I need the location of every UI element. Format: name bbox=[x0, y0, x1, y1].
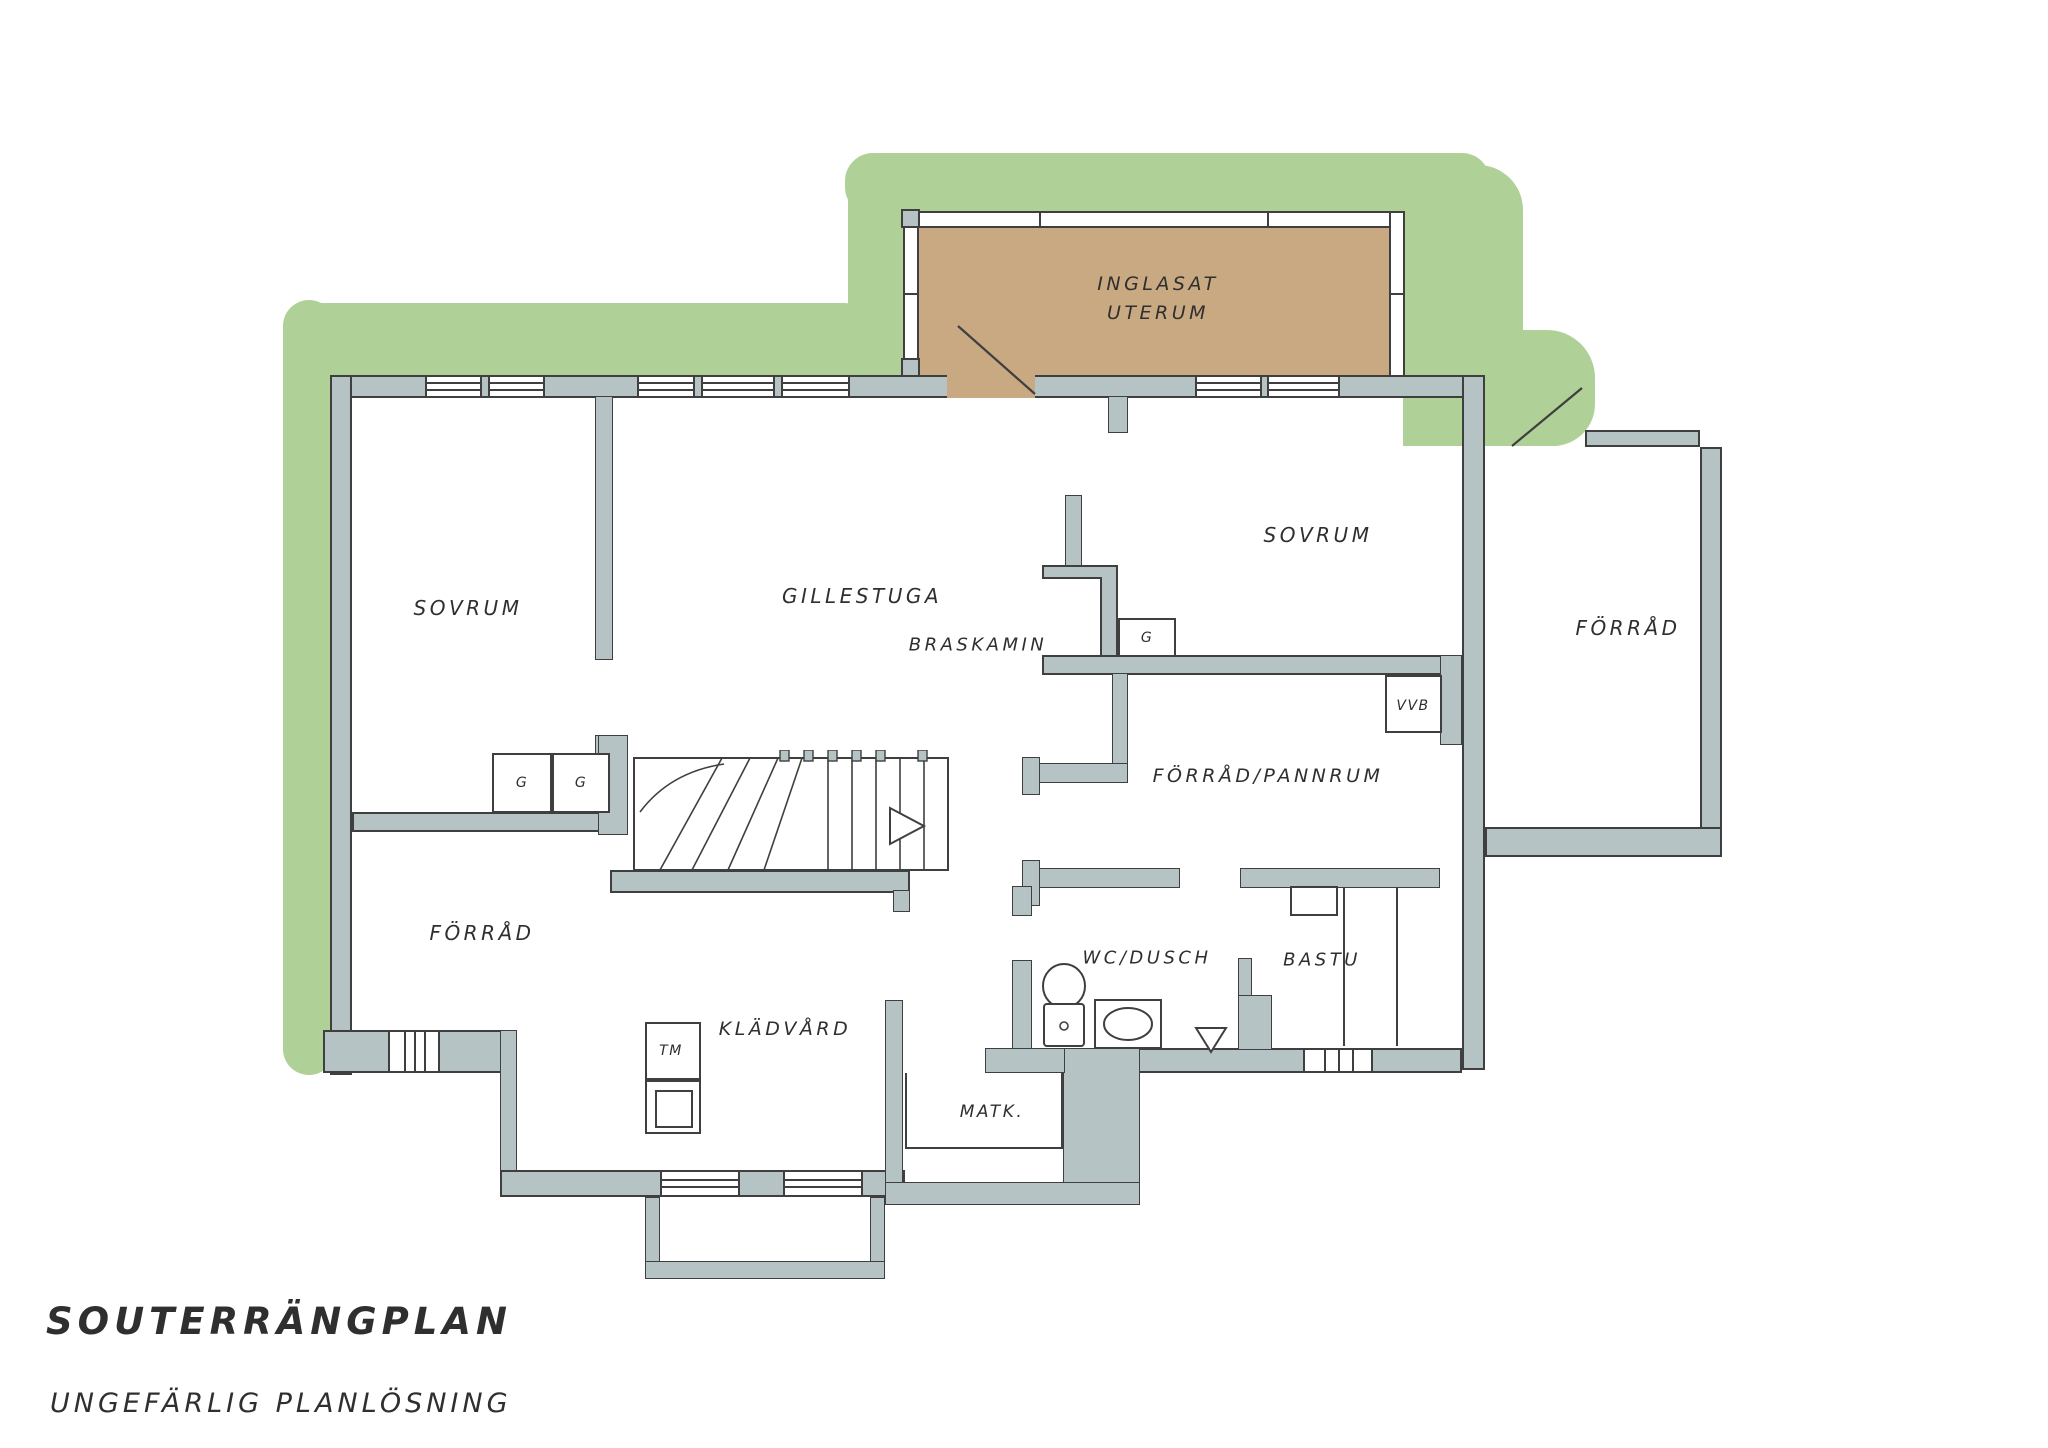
window bbox=[488, 375, 545, 398]
landscape-green-left-of-uterum bbox=[848, 162, 905, 378]
washbasin-icon bbox=[1093, 998, 1163, 1050]
wall-west bbox=[330, 375, 352, 1075]
window bbox=[425, 375, 482, 398]
sauna-bench-line bbox=[1396, 888, 1398, 1046]
wall-hall-pannrum-vert bbox=[1112, 673, 1128, 767]
forrad-right-wall-south bbox=[1485, 827, 1722, 857]
window bbox=[701, 375, 775, 398]
wall-matk-north bbox=[985, 1048, 1065, 1073]
room-label-forrad-left: FÖRRÅD bbox=[429, 921, 534, 945]
fireplace-opening bbox=[1042, 577, 1102, 663]
wall-sovrum-left-south bbox=[352, 812, 615, 832]
window bbox=[1267, 375, 1340, 398]
window bbox=[781, 375, 850, 398]
room-label-sovrum-right: SOVRUM bbox=[1264, 523, 1373, 547]
room-label-braskamin: BRASKAMIN bbox=[909, 635, 1048, 656]
window bbox=[660, 1170, 740, 1197]
window bbox=[388, 1030, 440, 1073]
appliance-inner bbox=[655, 1090, 693, 1128]
window bbox=[783, 1170, 863, 1197]
floor-plan: INGLASAT UTERUM SOVRUM GILLESTUGA BRASKA… bbox=[0, 0, 2048, 1448]
wall-stub-stairs bbox=[893, 890, 910, 912]
room-label-tm: TM bbox=[659, 1043, 683, 1059]
room-label-vvb: VVB bbox=[1396, 698, 1429, 714]
landscape-green-topleft bbox=[288, 303, 863, 379]
wardrobe-label-g3: G bbox=[1141, 630, 1153, 646]
room-label-wc-dusch: WC/DUSCH bbox=[1083, 948, 1212, 969]
uterum-corner-post-nw bbox=[901, 209, 920, 228]
wall-step-kladvard bbox=[500, 1030, 517, 1180]
wall-wc-west-lower bbox=[1012, 960, 1032, 1050]
window bbox=[1303, 1048, 1373, 1073]
room-label-forrad-pannrum: FÖRRÅD/PANNRUM bbox=[1153, 765, 1384, 787]
room-label-forrad-right: FÖRRÅD bbox=[1575, 616, 1680, 640]
forrad-right-wall-north bbox=[1585, 430, 1700, 447]
room-label-kladvard: KLÄDVÅRD bbox=[719, 1018, 852, 1040]
room-label-uterum-line1: INGLASAT bbox=[1097, 273, 1218, 295]
wall-east-inner bbox=[1462, 375, 1485, 1070]
room-label-gillestuga: GILLESTUGA bbox=[782, 584, 942, 608]
wall-wc-west-upper bbox=[1012, 886, 1032, 916]
landscape-green-above-uterum bbox=[845, 153, 1490, 215]
wall-kladvard-east bbox=[885, 1000, 903, 1197]
wall-sovrum-gillestuga-upper bbox=[595, 396, 613, 660]
wall-corridor-east bbox=[1240, 868, 1440, 888]
toilet-icon bbox=[1036, 962, 1092, 1052]
plan-title: SOUTERRÄNGPLAN bbox=[46, 1300, 512, 1343]
uterum-glazing-right bbox=[1389, 211, 1405, 377]
forrad-right-wall-east bbox=[1700, 447, 1722, 857]
plan-subtitle: UNGEFÄRLIG PLANLÖSNING bbox=[50, 1388, 512, 1419]
landscape-green-left bbox=[283, 300, 335, 1075]
wall-matk-south bbox=[885, 1182, 1140, 1205]
room-label-matk: MATK. bbox=[960, 1102, 1025, 1122]
wall-above-fireplace bbox=[1065, 495, 1082, 569]
wall-pannrum-east bbox=[1440, 655, 1462, 745]
uterum-glazing-top bbox=[903, 211, 1405, 228]
wall-wc-bastu-2 bbox=[1238, 995, 1272, 1050]
window bbox=[637, 375, 695, 398]
bay-wall-south bbox=[645, 1261, 885, 1279]
wall-corridor-west bbox=[1028, 868, 1180, 888]
wardrobe-label-g2: G bbox=[575, 775, 587, 791]
wall-stub-north bbox=[1108, 396, 1128, 433]
wall-sovrum-right-south bbox=[1042, 655, 1462, 675]
room-label-uterum-line2: UTERUM bbox=[1107, 302, 1209, 324]
wardrobe-label-g1: G bbox=[516, 775, 528, 791]
wall-cap bbox=[1022, 757, 1040, 795]
room-label-sovrum-left: SOVRUM bbox=[414, 596, 523, 620]
window bbox=[1195, 375, 1262, 398]
uterum-door-opening bbox=[947, 375, 1035, 398]
uterum-glazing-left bbox=[903, 211, 919, 377]
wall-hall-pannrum-horiz bbox=[1028, 763, 1128, 783]
wall-wc-bastu-1 bbox=[1238, 958, 1252, 998]
room-label-bastu: BASTU bbox=[1283, 950, 1361, 971]
sauna-heater bbox=[1290, 886, 1338, 916]
wall-stairs-south bbox=[610, 870, 910, 893]
